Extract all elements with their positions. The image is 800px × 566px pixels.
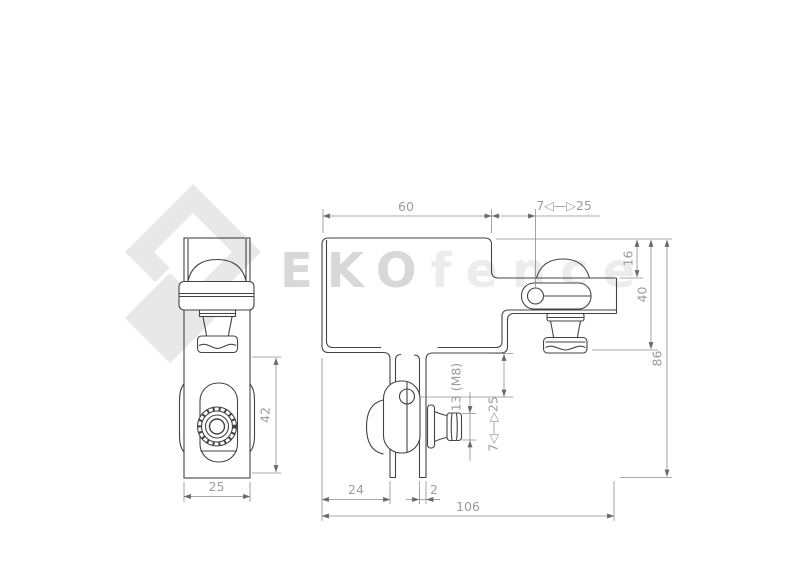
lower-knob-nut bbox=[447, 413, 462, 441]
dim-bottom-total-label: 106 bbox=[456, 499, 480, 514]
watermark-logo bbox=[122, 184, 261, 366]
lower-knob-neck bbox=[435, 412, 448, 442]
dim-right-mid-label: 40 bbox=[635, 287, 650, 303]
dim-top-range-label: 7◁—▷25 bbox=[536, 198, 592, 213]
dim-jaw-range-label: 7◁—▷25 bbox=[486, 396, 501, 452]
ext-thread bbox=[462, 414, 476, 441]
ledge-fold bbox=[438, 310, 617, 348]
side-tab-right bbox=[250, 384, 255, 452]
upper-clamp-hole bbox=[528, 288, 544, 304]
dim-side-height-label: 42 bbox=[258, 407, 273, 423]
dim-side-width-label: 25 bbox=[209, 479, 225, 494]
watermark-text: EKOfence bbox=[280, 243, 649, 299]
upper-knob-base bbox=[544, 338, 588, 354]
ledge-edge-and-leg-right bbox=[414, 314, 617, 478]
dim-thickness-label: 2 bbox=[430, 482, 438, 497]
dim-bottom-left-label: 24 bbox=[348, 482, 364, 497]
lower-dome bbox=[367, 400, 384, 454]
technical-drawing: EKOfence bbox=[0, 0, 800, 566]
side-clamp-band bbox=[179, 282, 254, 311]
lower-knob-flange bbox=[428, 405, 435, 448]
dim-thread-label: 13 (M8) bbox=[449, 363, 464, 411]
dim-right-upper-label: 16 bbox=[621, 251, 636, 267]
dim-top-width-label: 60 bbox=[398, 199, 414, 214]
drawing-sheet: EKOfence bbox=[0, 0, 800, 566]
dim-right-total-label: 86 bbox=[650, 351, 665, 367]
watermark-brand-bold: EKO bbox=[280, 243, 431, 299]
ext-jaw bbox=[420, 354, 513, 398]
side-tab-left bbox=[180, 384, 185, 452]
ext-bottom bbox=[322, 358, 614, 521]
upper-knob-neck bbox=[551, 321, 581, 338]
